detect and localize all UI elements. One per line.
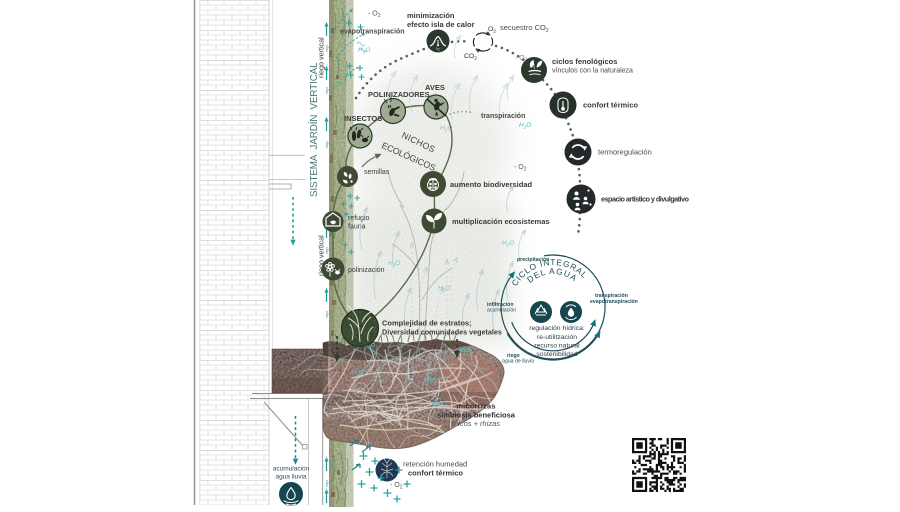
svg-text:riego: riego [325, 141, 329, 148]
svg-text:acumulación: acumulación [273, 466, 310, 473]
svg-text:H2O: H2O [352, 370, 364, 377]
svg-text:AVES: AVES [425, 83, 445, 92]
svg-text:transpiración: transpiración [481, 113, 525, 120]
svg-text:retención humedad: retención humedad [403, 460, 467, 469]
svg-text:micos + rhizas: micos + rhizas [452, 419, 500, 428]
svg-text:evapotranspiración: evapotranspiración [590, 299, 638, 305]
svg-text:riego: riego [325, 480, 329, 487]
svg-text:H2O: H2O [459, 348, 471, 355]
svg-text:riego: riego [325, 45, 329, 52]
svg-text:re-utilitzación: re-utilitzación [537, 334, 577, 341]
svg-text:micorrizas: micorrizas [456, 402, 496, 411]
svg-text:riego vertical: riego vertical [317, 37, 326, 78]
svg-text:confort térmico: confort térmico [408, 469, 463, 478]
svg-text:multiplicación ecosistemas: multiplicación ecosistemas [452, 217, 550, 226]
svg-text:vínculos con la naturaleza: vínculos con la naturaleza [552, 68, 633, 75]
svg-text:agua de lluvia: agua de lluvia [502, 359, 534, 365]
svg-text:°C: °C [436, 48, 440, 52]
svg-text:ciclos fenológicos: ciclos fenológicos [552, 57, 617, 66]
svg-text:confort térmico: confort térmico [583, 101, 638, 110]
svg-text:SISTEMA JARDÍN VERTICAL: SISTEMA JARDÍN VERTICAL [309, 62, 320, 197]
svg-text:evapotranspiración: evapotranspiración [340, 29, 405, 36]
svg-text:recurso natural: recurso natural [534, 343, 580, 350]
svg-text:PQ: PQ [357, 389, 366, 395]
svg-text:fauna: fauna [348, 224, 366, 231]
svg-text:polinización: polinización [348, 267, 385, 274]
svg-text:H2O: H2O [432, 401, 444, 408]
svg-text:semillas: semillas [364, 169, 390, 176]
svg-text:aumento biodiversidad: aumento biodiversidad [450, 180, 533, 189]
svg-text:minimización: minimización [407, 11, 455, 20]
svg-text:H2O: H2O [425, 378, 437, 385]
svg-text:espacio artístico y divulgativ: espacio artístico y divulgativo [601, 195, 690, 204]
svg-text:sostenibilidad: sostenibilidad [536, 351, 577, 358]
svg-text:regulación hídrica:: regulación hídrica: [529, 325, 585, 332]
svg-text:H2O: H2O [368, 442, 380, 448]
svg-text:INSECTOS: INSECTOS [344, 114, 382, 123]
svg-text:termoregulación: termoregulación [598, 148, 652, 157]
svg-text:refugio: refugio [348, 215, 370, 222]
svg-text:riego: riego [325, 87, 329, 94]
svg-text:precipitación: precipitación [517, 257, 549, 263]
svg-text:agua lluvia: agua lluvia [275, 474, 306, 481]
svg-text:Complejidad de estratos;: Complejidad de estratos; [382, 319, 472, 328]
svg-text:riego: riego [325, 311, 329, 318]
svg-text:acumulación: acumulación [487, 308, 516, 314]
svg-text:POLINIZADORES: POLINIZADORES [368, 90, 430, 99]
svg-text:efecto isla de calor: efecto isla de calor [407, 20, 475, 29]
svg-text:Diversidad comunidades vegetal: Diversidad comunidades vegetales [382, 328, 502, 337]
svg-text:riego: riego [325, 247, 329, 254]
